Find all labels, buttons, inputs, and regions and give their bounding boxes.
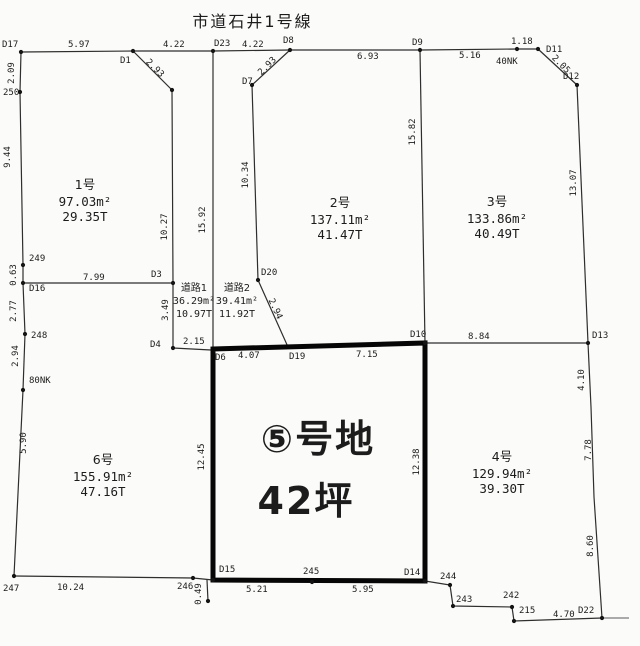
plot-name: 2号 — [330, 195, 350, 210]
cadastral-diagram: D175.97D14.22D234.22D8D76.93D95.1640NK1.… — [0, 0, 640, 646]
dimension-label: 13.07 — [569, 169, 579, 196]
plot-area: 133.86m² — [467, 211, 527, 226]
road-tsubo: 11.92T — [219, 309, 255, 320]
survey-point-label: D9 — [412, 38, 423, 48]
dimension-label: 0.49 — [194, 583, 204, 605]
dimension-label: 5.21 — [246, 585, 268, 595]
dimension-label: 5.16 — [459, 51, 481, 61]
plot-name: 4号 — [492, 449, 512, 464]
parcel-line-road2 — [252, 85, 258, 280]
southeast-chain — [425, 581, 602, 621]
survey-point-label: D4 — [150, 340, 161, 350]
survey-point-marker — [423, 579, 427, 583]
dimension-label: 10.24 — [57, 583, 84, 593]
dimension-label: 12.38 — [412, 448, 422, 475]
survey-point-marker — [423, 341, 427, 345]
survey-point-label: 247 — [3, 584, 19, 594]
survey-point-marker — [512, 619, 516, 623]
plot-area: 129.94m² — [472, 466, 532, 481]
stub-246 — [207, 580, 208, 601]
dimension-label: 9.44 — [3, 146, 13, 168]
road-area: 39.41m² — [216, 296, 258, 307]
survey-point-marker — [18, 90, 22, 94]
survey-point-marker — [131, 49, 135, 53]
plot-tsubo: 39.30T — [479, 481, 525, 496]
dimension-label: 4.07 — [238, 351, 260, 361]
plot-tsubo: 40.49T — [474, 226, 520, 241]
survey-point-marker — [536, 47, 540, 51]
survey-point-label: 40NK — [496, 57, 518, 67]
survey-point-label: D22 — [578, 606, 594, 616]
survey-point-marker — [206, 599, 210, 603]
survey-point-marker — [191, 576, 195, 580]
dimension-label: 4.22 — [163, 40, 185, 50]
dimension-label: 4.70 — [553, 610, 575, 620]
dimension-label: 5.90 — [19, 432, 29, 454]
dimension-label: 12.45 — [197, 443, 207, 470]
dimension-label: 1.18 — [511, 37, 533, 47]
survey-point-label: D23 — [214, 39, 230, 49]
plot-name: 6号 — [93, 452, 113, 467]
survey-point-label: 248 — [31, 331, 47, 341]
dimension-label: 8.60 — [586, 535, 596, 557]
plot-area: 155.91m² — [73, 469, 133, 484]
survey-point-label: D15 — [219, 565, 235, 575]
plot-name: 3号 — [487, 194, 507, 209]
dimension-label: 7.78 — [584, 439, 594, 461]
survey-point-marker — [21, 281, 25, 285]
survey-point-marker — [575, 83, 579, 87]
east-boundary-upper — [577, 85, 588, 343]
survey-point-label: D13 — [592, 331, 608, 341]
survey-point-label: D16 — [29, 284, 45, 294]
survey-point-label: D8 — [283, 36, 294, 46]
survey-point-marker — [418, 48, 422, 52]
survey-point-marker — [510, 605, 514, 609]
south-boundary-plot6 — [14, 576, 213, 580]
road-area: 36.29m² — [173, 296, 215, 307]
survey-point-label: D14 — [404, 568, 420, 578]
dimension-label: 15.92 — [198, 206, 208, 233]
plot-area: 137.11m² — [310, 212, 370, 227]
survey-point-label: D19 — [289, 352, 305, 362]
survey-point-label: 246 — [177, 582, 193, 592]
survey-point-label: 249 — [29, 254, 45, 264]
dimension-label: 0.63 — [9, 264, 19, 286]
survey-point-marker — [21, 263, 25, 267]
survey-point-marker — [211, 578, 215, 582]
lot5-title: ⑤号地 — [261, 417, 375, 461]
d4-connector — [173, 348, 211, 350]
dimension-label: 7.99 — [83, 273, 105, 283]
survey-point-marker — [211, 49, 215, 53]
dimension-label: 2.94 — [11, 345, 21, 367]
parcel-line-c — [420, 50, 425, 343]
survey-point-marker — [310, 580, 314, 584]
survey-point-marker — [600, 616, 604, 620]
dimension-label: 10.34 — [241, 161, 251, 188]
survey-point-marker — [448, 583, 452, 587]
plot-name: 1号 — [75, 177, 95, 192]
parcel-line-a — [172, 90, 173, 348]
survey-point-marker — [171, 346, 175, 350]
survey-point-label: D11 — [546, 45, 562, 55]
survey-point-label: 244 — [440, 572, 456, 582]
survey-point-marker — [515, 47, 519, 51]
dimension-label: 4.10 — [577, 369, 587, 391]
east-boundary-lower — [588, 343, 602, 618]
survey-point-label: D3 — [151, 270, 162, 280]
dimension-label: 5.95 — [352, 585, 374, 595]
survey-point-marker — [586, 341, 590, 345]
dimension-label: 2.93 — [256, 55, 278, 77]
lot5-tsubo: 42坪 — [258, 479, 355, 523]
survey-point-marker — [451, 604, 455, 608]
plot-area: 97.03m² — [59, 194, 112, 209]
survey-point-label: 250 — [3, 88, 19, 98]
survey-point-marker — [288, 48, 292, 52]
survey-point-label: D17 — [2, 40, 18, 50]
survey-point-marker — [171, 281, 175, 285]
road-tsubo: 10.97T — [176, 309, 212, 320]
dimension-label: 6.93 — [357, 52, 379, 62]
survey-point-marker — [256, 278, 260, 282]
dimension-label: 3.49 — [161, 299, 171, 321]
generated-labels: D175.97D14.22D234.22D8D76.93D95.1640NK1.… — [2, 36, 608, 623]
road-name: 道路2 — [224, 281, 250, 294]
survey-point-label: 242 — [503, 591, 519, 601]
dimension-label: 2.93 — [143, 57, 165, 79]
dimension-label: 8.84 — [468, 332, 490, 342]
dimension-label: 2.09 — [7, 62, 17, 84]
survey-point-label: 243 — [456, 595, 472, 605]
survey-point-label: 80NK — [29, 376, 51, 386]
survey-point-marker — [250, 83, 254, 87]
lot5-highlight-outline — [213, 343, 425, 581]
dimension-label: 15.82 — [408, 118, 418, 145]
road-name: 道路1 — [181, 281, 207, 294]
dimension-label: 10.27 — [160, 213, 170, 240]
survey-point-marker — [23, 332, 27, 336]
survey-point-marker — [21, 388, 25, 392]
plot-tsubo: 41.47T — [317, 227, 363, 242]
survey-point-marker — [12, 574, 16, 578]
survey-point-label: D10 — [410, 330, 426, 340]
plot-tsubo: 47.16T — [80, 484, 126, 499]
survey-point-label: 215 — [519, 606, 535, 616]
dimension-label: 7.15 — [356, 350, 378, 360]
site-plan-document: 市道石井1号線 D175.97D14.22D234.22D8D76.93D95.… — [0, 0, 640, 646]
survey-point-label: 245 — [303, 567, 319, 577]
plot-tsubo: 29.35T — [62, 209, 108, 224]
survey-point-marker — [170, 88, 174, 92]
survey-point-marker — [19, 50, 23, 54]
survey-point-label: D1 — [120, 56, 131, 66]
dimension-label: 5.97 — [68, 40, 90, 50]
dimension-label: 4.22 — [242, 40, 264, 50]
survey-point-label: D6 — [215, 353, 226, 363]
dimension-label: 2.94 — [266, 297, 284, 321]
dimension-label: 2.77 — [9, 300, 19, 322]
dimension-label: 2.15 — [183, 337, 205, 347]
survey-point-label: D20 — [261, 268, 277, 278]
